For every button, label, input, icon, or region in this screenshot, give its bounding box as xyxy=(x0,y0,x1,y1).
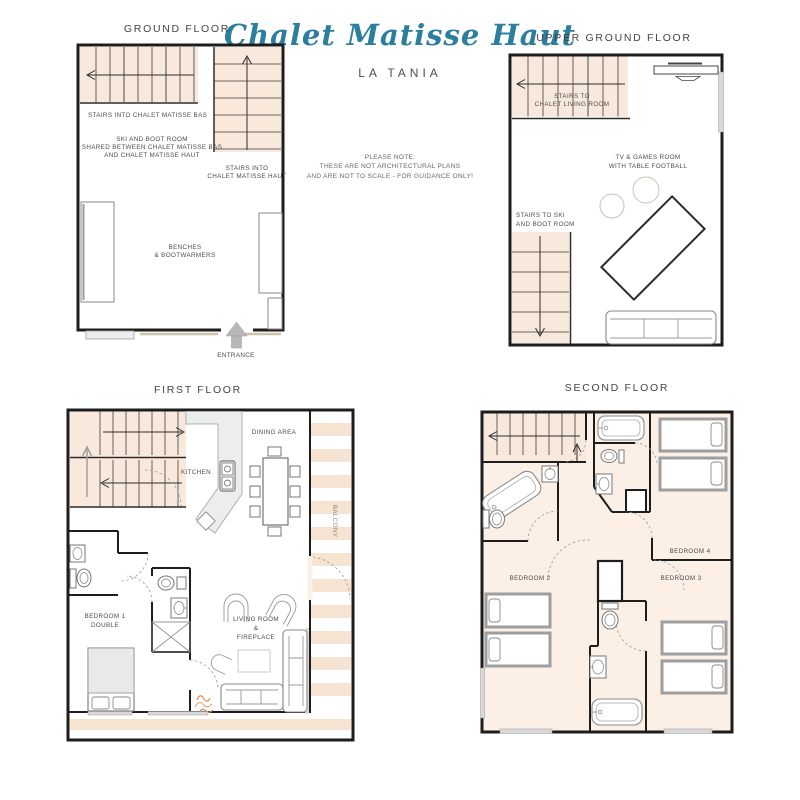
floor-plan-first: FIRST FLOOR BALCONY xyxy=(68,384,353,740)
staircase-second-floor xyxy=(482,414,586,463)
window-bottom xyxy=(148,712,208,716)
sink-icon xyxy=(596,474,612,494)
tv-games-label-1: TV & GAMES ROOM xyxy=(615,154,680,161)
window-bottom xyxy=(88,712,132,716)
benches-label-1: BENCHES xyxy=(169,244,202,251)
stairs-haut-label-2: CHALET MATISSE HAUT xyxy=(207,173,286,180)
window-left xyxy=(481,668,485,718)
bedroom1-label-2: DOUBLE xyxy=(91,622,119,629)
stairs-ski-label-2: AND BOOT ROOM xyxy=(516,221,575,228)
bench-outside xyxy=(86,331,134,339)
twin-bed xyxy=(662,622,726,654)
upper-ground-floor-title: UPPER GROUND FLOOR xyxy=(536,32,691,44)
bedroom4-label: BEDROOM 4 xyxy=(670,548,711,555)
stairs-to-matisse-haut xyxy=(214,47,281,152)
toilet-icon xyxy=(602,603,618,629)
sofa xyxy=(606,311,716,344)
living-label-2: & xyxy=(254,625,259,632)
stairs-to-ski-room xyxy=(512,232,571,344)
stairs-bas-label: STAIRS INTO CHALET MATISSE BAS xyxy=(88,112,207,119)
staircase-first-floor xyxy=(70,412,186,508)
twin-bed xyxy=(662,661,726,693)
balcony-label: BALCONY xyxy=(331,505,338,538)
twin-bed xyxy=(486,594,550,627)
twin-bed xyxy=(660,419,726,451)
floor-plan-upper-ground: UPPER GROUND FLOOR STAIRS TO CHALET LIVI… xyxy=(510,32,724,345)
toilet-icon xyxy=(483,510,505,528)
bench-left xyxy=(81,202,114,302)
stairs-to-living-room xyxy=(512,57,630,119)
ski-room-label-2: SHARED BETWEEN CHALET MATISSE BAS xyxy=(82,144,222,151)
window-bottom xyxy=(664,729,712,734)
floor-plan-ground: GROUND FLOOR STAIRS INTO CHALET MATISSE … xyxy=(78,23,287,359)
window-right xyxy=(719,72,724,132)
first-floor-title: FIRST FLOOR xyxy=(154,384,242,396)
sofa-bottom xyxy=(221,684,283,710)
ensuite-toilet-icon xyxy=(158,576,186,590)
stairs-to-matisse-bas xyxy=(80,47,198,103)
stairs-living-label-1: STAIRS TO xyxy=(554,93,590,100)
twin-bed xyxy=(486,633,550,666)
stairs-living-label-2: CHALET LIVING ROOM xyxy=(535,101,610,108)
entrance-label: ENTRANCE xyxy=(217,352,254,359)
second-floor-title: SECOND FLOOR xyxy=(565,382,669,394)
ground-floor-title: GROUND FLOOR xyxy=(124,23,230,35)
tv-games-label-2: WITH TABLE FOOTBALL xyxy=(609,163,688,170)
toilet-icon xyxy=(601,450,624,464)
closet xyxy=(598,561,622,601)
kitchen-label: KITCHEN xyxy=(181,469,211,476)
bedroom2-label: BEDROOM 2 xyxy=(510,575,551,582)
wc-sink-icon xyxy=(70,545,85,562)
window-bottom xyxy=(500,729,552,734)
stairs-ski-label-1: STAIRS TO SKI xyxy=(516,212,565,219)
floor-plan-second: SECOND FLOOR xyxy=(479,382,732,734)
wc-toilet-icon xyxy=(70,569,91,588)
twin-bed xyxy=(660,458,726,490)
floor-plan-sheet: Chalet Matisse Haut LA TANIA PLEASE NOTE… xyxy=(0,0,800,800)
living-label-3: FIREPLACE xyxy=(237,634,275,641)
bedroom1-label-1: BEDROOM 1 xyxy=(85,613,126,620)
ski-room-label-1: SKI AND BOOT ROOM xyxy=(116,136,188,143)
floor-plans-canvas: GROUND FLOOR STAIRS INTO CHALET MATISSE … xyxy=(0,0,800,800)
bathtub-icon xyxy=(598,416,644,440)
ski-room-label-3: AND CHALET MATISSE HAUT xyxy=(104,152,200,159)
kitchen-sink-icon xyxy=(220,461,235,491)
ensuite-sink-icon xyxy=(171,598,187,618)
sofa-side xyxy=(283,628,309,714)
sink-icon xyxy=(590,656,606,678)
benches-label-2: & BOOTWARMERS xyxy=(155,252,216,259)
double-bed xyxy=(88,648,134,711)
bedroom3-label: BEDROOM 3 xyxy=(661,575,702,582)
bathtub-icon xyxy=(592,699,642,725)
balcony-door-gap xyxy=(308,556,313,600)
dining-label: DINING AREA xyxy=(252,429,297,436)
stairs-haut-label-1: STAIRS INTO xyxy=(226,165,269,172)
living-label-1: LIVING ROOM xyxy=(233,616,279,623)
sink-icon xyxy=(542,466,558,482)
